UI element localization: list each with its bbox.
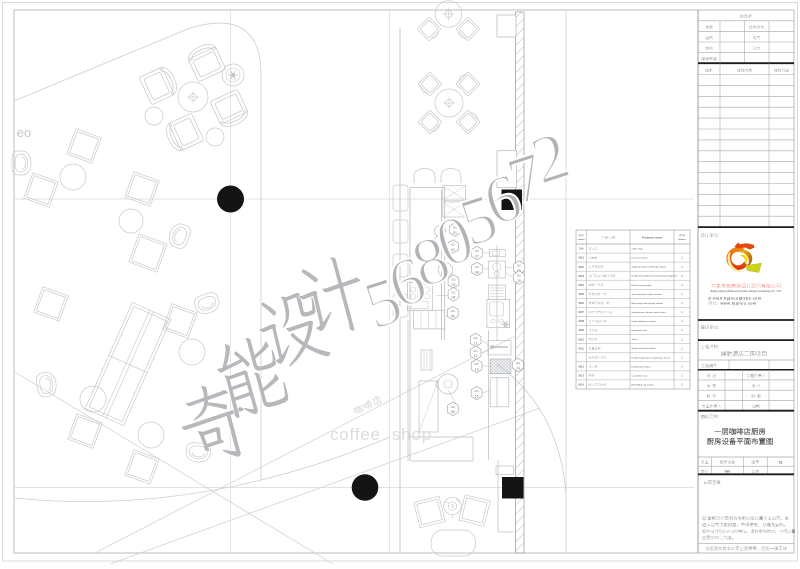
svg-text:13: 13 (475, 367, 479, 371)
svg-text:0611: 0611 (578, 346, 584, 350)
svg-text:05: 05 (451, 314, 455, 318)
svg-text:mm: mm (725, 469, 731, 473)
svg-text:11: 11 (474, 341, 478, 345)
svg-text:Double temperature mixed water: Double temperature mixed water faucet (632, 356, 671, 359)
svg-text:0606: 0606 (578, 301, 584, 305)
svg-text:0612: 0612 (578, 364, 584, 368)
svg-text:Embedded cup washer: Embedded cup washer (632, 384, 655, 387)
svg-text:Double door platform fresh-kee: Double door platform fresh-keeping refri… (632, 275, 678, 278)
svg-text:number: number (578, 239, 585, 241)
svg-text:GC: GC (517, 274, 521, 278)
svg-text:www.bjqnco.com: www.bjqnco.com (721, 300, 757, 305)
svg-text:GC: GC (516, 361, 520, 365)
svg-text:coffee shop: coffee shop (632, 249, 644, 251)
svg-text:GC: GC (474, 362, 478, 366)
svg-text:Number: Number (678, 239, 685, 241)
svg-text:14: 14 (516, 366, 520, 370)
svg-text:eo: eo (17, 125, 31, 140)
svg-text:Beijing Qineng Business Kitche: Beijing Qineng Business Kitchen Design C… (711, 289, 782, 293)
svg-text:01: 01 (779, 460, 783, 464)
svg-text:06: 06 (451, 410, 455, 414)
svg-text:Under platform ice maker: Under platform ice maker (632, 320, 657, 323)
svg-text:GC: GC (451, 309, 455, 313)
svg-text:Cup holder rack: Cup holder rack (632, 374, 648, 377)
svg-text:0605: 0605 (578, 292, 584, 296)
svg-text:GC: GC (473, 349, 477, 353)
svg-text:Iced can cabinet: Iced can cabinet (632, 257, 648, 260)
svg-text:Instantaneous electric water h: Instantaneous electric water heater (632, 311, 666, 314)
svg-text:0608: 0608 (578, 319, 584, 323)
svg-text:shop: shop (392, 425, 432, 444)
svg-text:0602: 0602 (578, 265, 584, 269)
svg-text:01A: 01A (579, 247, 584, 251)
svg-text:Single opening conditioning ca: Single opening conditioning cabinet (632, 266, 667, 269)
svg-text:0603: 0603 (578, 274, 584, 278)
svg-text:Right angle cake display cabin: Right angle cake display cabinet (632, 302, 664, 305)
svg-text:04: 04 (452, 296, 456, 300)
svg-text:0613: 0613 (578, 374, 584, 378)
svg-text:GC: GC (473, 336, 477, 340)
svg-text:0607: 0607 (578, 310, 584, 314)
svg-text:GC: GC (474, 389, 478, 393)
svg-text:0614: 0614 (578, 383, 584, 387)
svg-text:12: 12 (474, 354, 478, 358)
svg-text:0604: 0604 (578, 283, 584, 287)
svg-text:0601: 0601 (578, 256, 584, 260)
svg-text:Electric bean grinder: Electric bean grinder (632, 284, 652, 287)
svg-text:Juicer: Juicer (632, 338, 638, 341)
svg-text:coffee: coffee (330, 425, 381, 444)
svg-text:GC: GC (517, 264, 521, 268)
svg-text:Disinfection cabinet: Disinfection cabinet (632, 365, 651, 368)
svg-text:Hand wash sink: Hand wash sink (632, 330, 648, 332)
svg-text:15: 15 (475, 394, 479, 398)
svg-text:0610: 0610 (578, 337, 584, 341)
svg-text:GC: GC (451, 405, 455, 409)
svg-text:10: 10 (517, 279, 521, 283)
svg-text:0609: 0609 (578, 328, 584, 332)
svg-text:Semi automatic coffee machine: Semi automatic coffee machine (632, 293, 663, 296)
svg-text:Products name: Products name (642, 236, 663, 240)
svg-text:Single star basin cabinet: Single star basin cabinet (632, 347, 656, 350)
